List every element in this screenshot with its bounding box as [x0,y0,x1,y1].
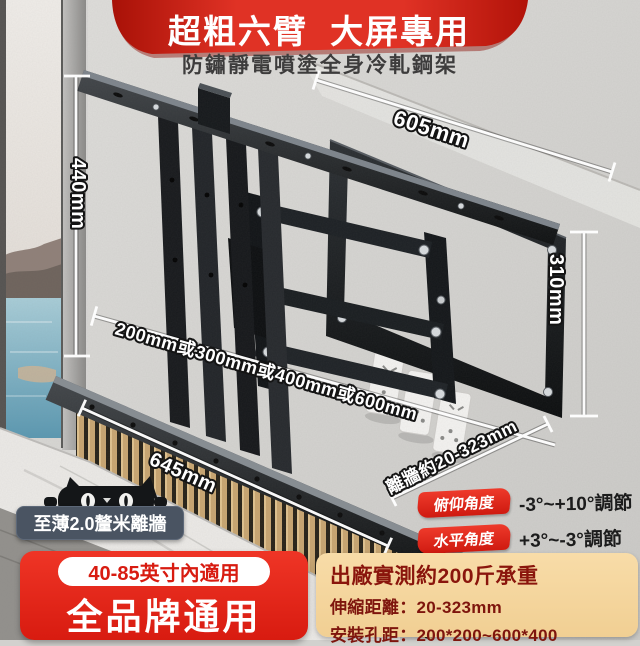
banner-title: 超粗六臂 大屏專用 [104,5,534,53]
dim-label-310: 310mm [545,254,567,325]
load-capacity-label: 出廠實測約200斤承重 [330,560,624,590]
product-image: 605mm 440mm 310mm 645mm 200mm或300mm或400m… [0,0,640,640]
dim-label-440: 440mm [67,158,89,229]
extension-range-label: 伸縮距離：20-323mm [330,593,624,618]
banner-subtitle: 防鏽靜電噴塗全身冷軋鋼架 [80,49,560,79]
swivel-angle-pill: 水平角度 [417,523,512,554]
tilt-angle-row: 俯仰角度 -3°~+10°調節 [418,489,632,516]
thickness-badge: 至薄2.0釐米離牆 [16,506,184,540]
tilt-angle-pill: 俯仰角度 [417,487,512,518]
hole-pitch-label: 安裝孔距：200*200~600*400 [330,621,624,646]
swivel-angle-value: +3°~-3°調節 [519,524,622,553]
size-compatibility-box: 40-85英寸內適用 全品牌通用 [20,551,308,640]
spec-box: 出廠實測約200斤承重 伸縮距離：20-323mm 安裝孔距：200*200~6… [316,553,638,637]
tilt-angle-value: -3°~+10°調節 [519,488,633,517]
size-range-pill: 40-85英寸內適用 [58,557,270,586]
universal-brand-label: 全品牌通用 [20,588,308,640]
swivel-angle-row: 水平角度 +3°~-3°調節 [418,525,622,552]
